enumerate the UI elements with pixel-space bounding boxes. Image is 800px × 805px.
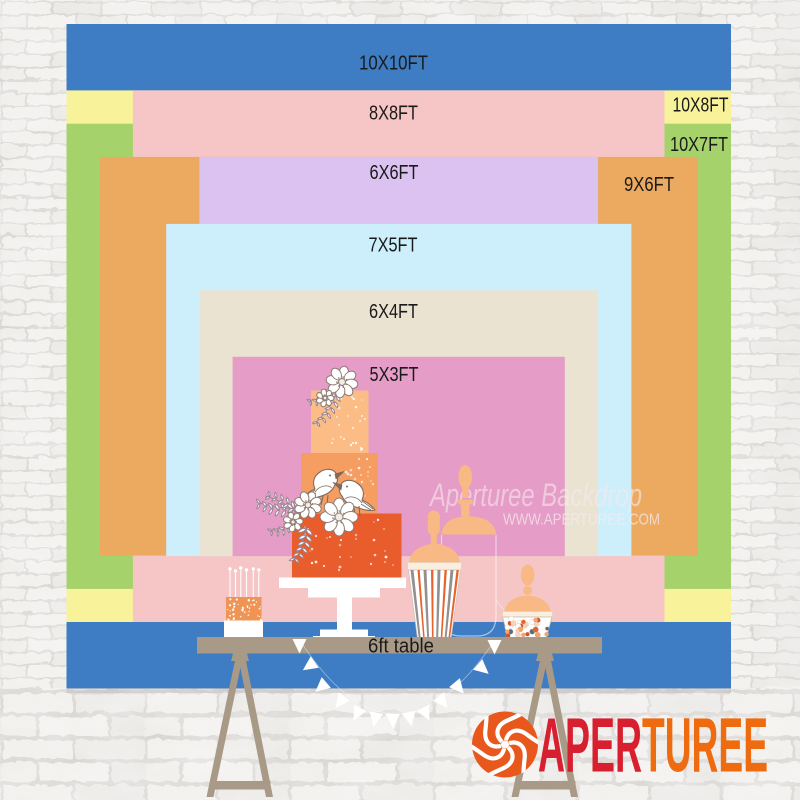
- svg-text:9X6FT: 9X6FT: [624, 174, 674, 196]
- svg-text:6X4FT: 6X4FT: [369, 301, 418, 323]
- svg-text:10X7FT: 10X7FT: [670, 134, 728, 156]
- svg-text:5X3FT: 5X3FT: [370, 364, 419, 386]
- svg-text:APER: APER: [538, 703, 642, 789]
- svg-text:10X10FT: 10X10FT: [359, 52, 428, 74]
- svg-text:6ft table: 6ft table: [368, 636, 434, 658]
- svg-text:6X6FT: 6X6FT: [370, 162, 419, 184]
- svg-text:10X8FT: 10X8FT: [673, 94, 729, 116]
- svg-text:7X5FT: 7X5FT: [369, 234, 418, 256]
- svg-text:TUREE: TUREE: [642, 703, 768, 789]
- svg-text:8X8FT: 8X8FT: [369, 102, 418, 124]
- svg-text:WWW.APERTUREE.COM: WWW.APERTUREE.COM: [503, 512, 660, 529]
